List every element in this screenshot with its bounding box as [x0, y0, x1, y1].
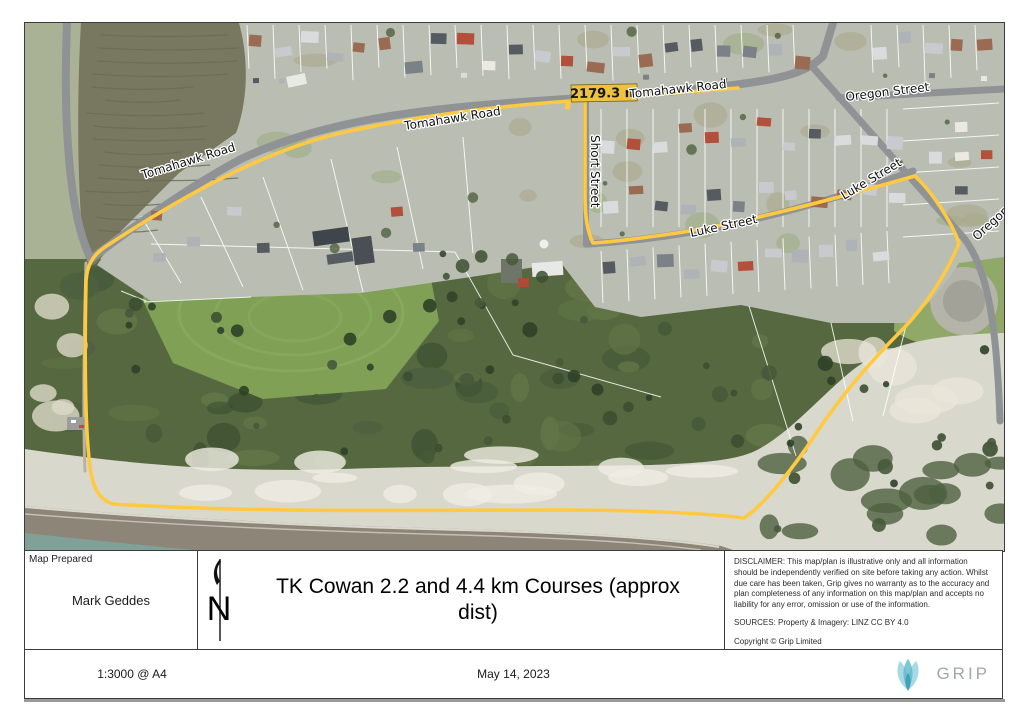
street-label-short: Short Street: [588, 135, 602, 208]
prepared-cell: Map Prepared Mark Geddes: [25, 551, 197, 649]
north-arrow-icon: N: [206, 556, 232, 644]
map-canvas: 2179.3 m Tomahawk Road Tomahawk Road Tom…: [25, 23, 1004, 551]
prepared-label: Map Prepared: [29, 554, 92, 565]
legal-cell: DISCLAIMER: This map/plan is illustrativ…: [724, 551, 1002, 649]
brand-name: GRIP: [936, 664, 990, 684]
brand-lockup: GRIP: [888, 654, 990, 694]
north-letter: N: [207, 590, 232, 628]
aerial-map: 2179.3 m Tomahawk Road Tomahawk Road Tom…: [24, 22, 1005, 552]
footer-bar: 1:3000 @ A4 May 14, 2023 GRIP: [24, 649, 1003, 699]
disclaimer-text: DISCLAIMER: This map/plan is illustrativ…: [734, 557, 993, 611]
sources-text: SOURCES: Property & Imagery: LINZ CC BY …: [734, 618, 993, 629]
title-block: Map Prepared Mark Geddes N TK Cowan 2.2 …: [24, 550, 1003, 650]
page-bottom-shadow: [24, 699, 1005, 702]
map-title: TK Cowan 2.2 and 4.4 km Courses (approx …: [260, 574, 696, 627]
title-cell: N TK Cowan 2.2 and 4.4 km Courses (appro…: [197, 551, 724, 649]
map-date: May 14, 2023: [25, 667, 1002, 681]
grip-logo-icon: [888, 654, 928, 694]
copyright-text: Copyright © Grip Limited: [734, 637, 993, 648]
prepared-by-name: Mark Geddes: [25, 593, 197, 608]
map-document-page: 2179.3 m Tomahawk Road Tomahawk Road Tom…: [0, 0, 1024, 724]
